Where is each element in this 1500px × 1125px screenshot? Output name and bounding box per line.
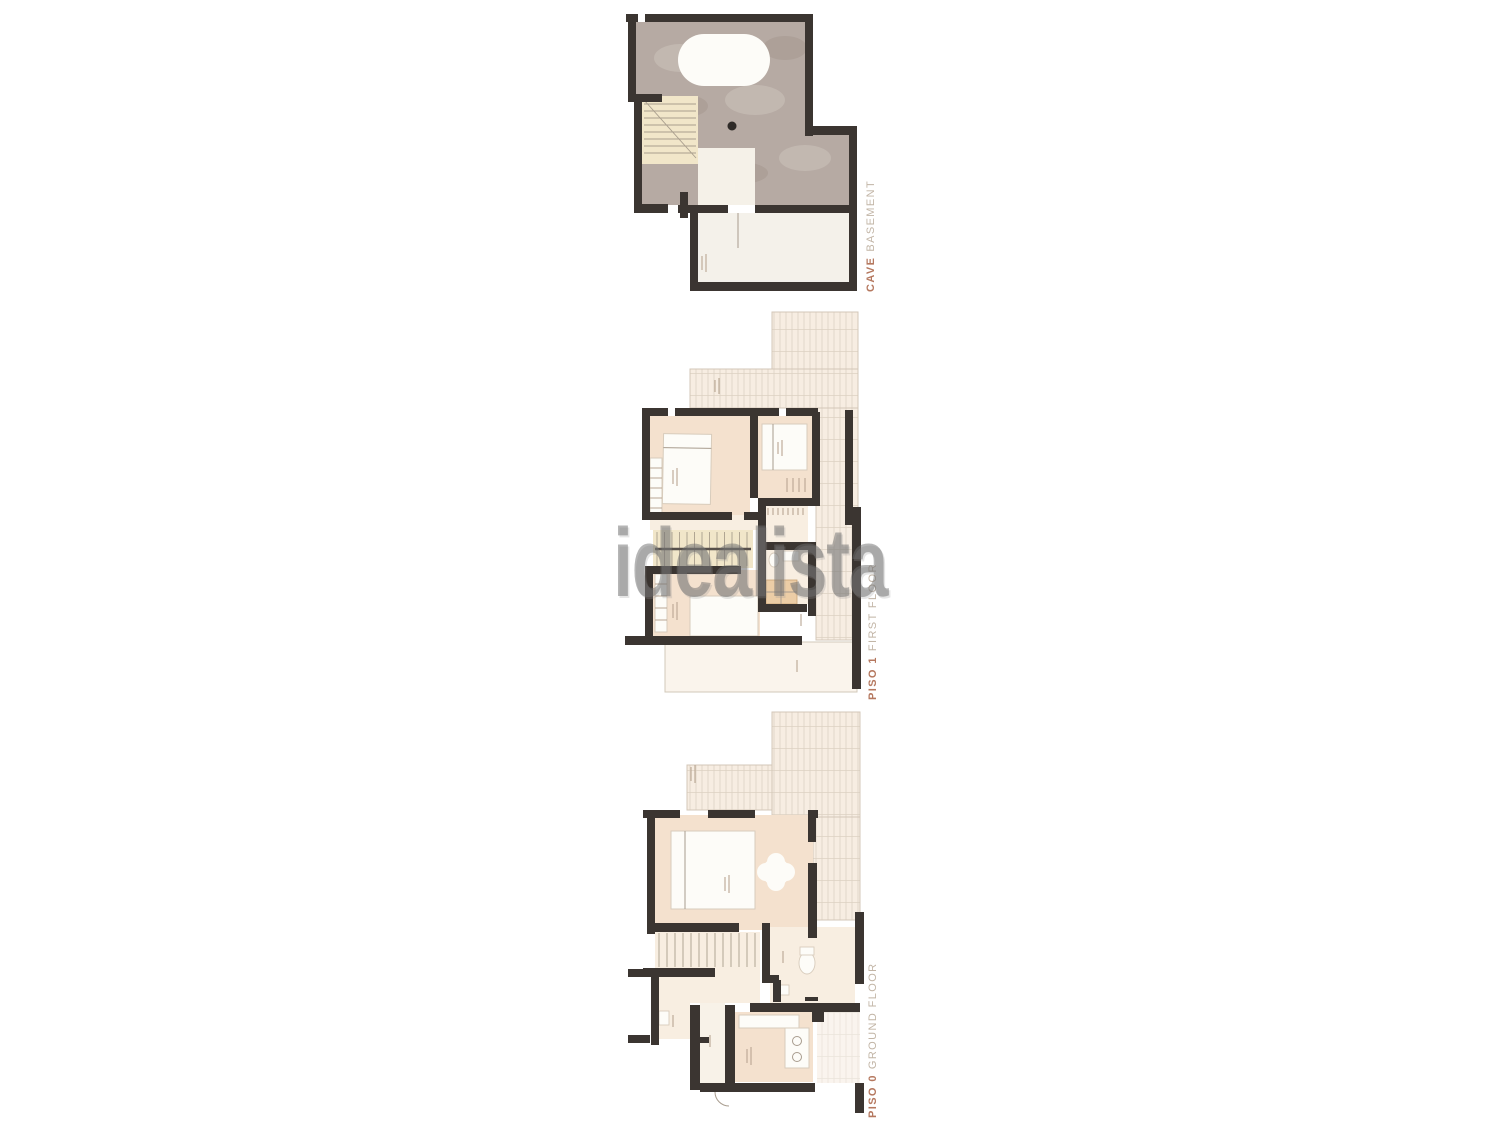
lower-terrace	[665, 642, 857, 692]
sofa-rug	[671, 831, 755, 909]
floorplan-sheet: CAVEBASEMENT	[0, 0, 1500, 1125]
basement-label-rest: BASEMENT	[865, 180, 877, 252]
door-arc	[715, 1092, 729, 1106]
wc-fixture	[659, 1011, 669, 1025]
column-dot	[728, 122, 737, 131]
wardrobe-1	[650, 458, 662, 515]
basement-corridor	[698, 148, 755, 205]
ground-floor-label-bold: PISO 0	[867, 1074, 879, 1118]
wc-room	[655, 977, 690, 1039]
bed-2	[762, 424, 807, 470]
ground-floor-plan	[615, 705, 895, 1125]
first-floor-plan	[615, 308, 895, 703]
storage-room	[698, 213, 849, 282]
bed-1	[662, 434, 711, 505]
basement-label-bold: CAVE	[865, 257, 877, 292]
ground-floor-label: PISO 0GROUND FLOOR	[866, 962, 880, 1118]
parking-pad	[678, 34, 770, 86]
first-floor-label-bold: PISO 1	[867, 656, 879, 700]
basement-floor-label: CAVEBASEMENT	[864, 180, 878, 292]
idealista-watermark: idealista	[613, 514, 887, 611]
basement-stairs	[642, 96, 698, 164]
basement-floor-plan	[620, 8, 890, 298]
ground-floor-label-rest: GROUND FLOOR	[867, 962, 879, 1069]
